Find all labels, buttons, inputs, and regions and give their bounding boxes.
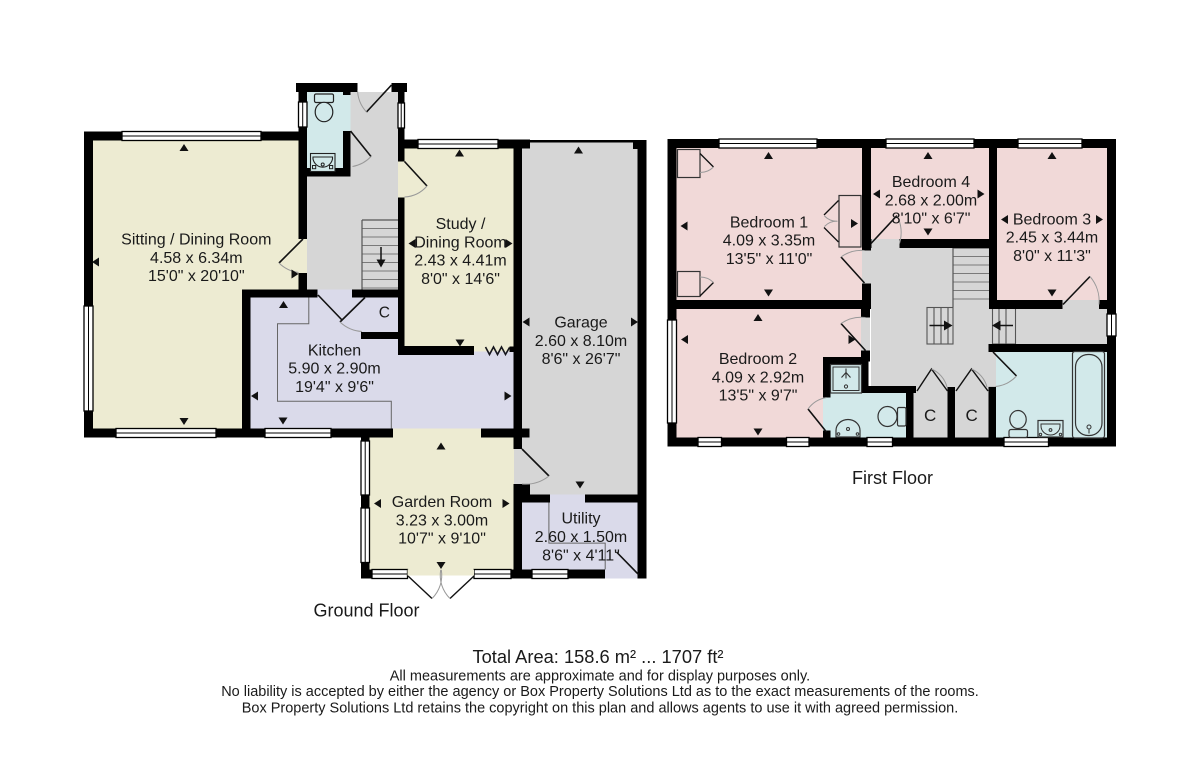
svg-text:8'6" x 26'7": 8'6" x 26'7" <box>542 351 621 368</box>
svg-text:C: C <box>965 406 977 425</box>
svg-text:5.90 x 2.90m: 5.90 x 2.90m <box>288 361 381 378</box>
svg-text:10'7" x 9'10": 10'7" x 9'10" <box>398 531 486 548</box>
svg-text:Bedroom 1: Bedroom 1 <box>730 214 808 231</box>
svg-text:19'4" x 9'6": 19'4" x 9'6" <box>295 379 374 396</box>
svg-text:2.43 x 4.41m: 2.43 x 4.41m <box>414 253 507 270</box>
svg-text:Total Area: 158.6 m² ... 1707: Total Area: 158.6 m² ... 1707 ft² <box>473 646 724 667</box>
svg-text:Box Property Solutions Ltd ret: Box Property Solutions Ltd retains the c… <box>242 701 959 717</box>
svg-text:13'5" x 11'0": 13'5" x 11'0" <box>726 251 813 268</box>
svg-text:Study /: Study / <box>436 216 486 233</box>
svg-text:13'5" x 9'7": 13'5" x 9'7" <box>719 388 798 405</box>
svg-text:Garage: Garage <box>554 315 607 332</box>
svg-text:Garden Room: Garden Room <box>392 494 493 511</box>
svg-text:Bedroom 2: Bedroom 2 <box>719 351 797 368</box>
svg-text:Bedroom 4: Bedroom 4 <box>892 174 970 191</box>
svg-text:8'0" x 11'3": 8'0" x 11'3" <box>1013 248 1091 265</box>
svg-text:C: C <box>379 305 390 322</box>
svg-text:Bedroom 3: Bedroom 3 <box>1013 211 1091 228</box>
svg-text:4.58 x 6.34m: 4.58 x 6.34m <box>150 250 243 267</box>
svg-text:4.09 x 3.35m: 4.09 x 3.35m <box>723 233 816 250</box>
svg-text:8'6" x 4'11": 8'6" x 4'11" <box>542 547 620 564</box>
svg-text:Sitting / Dining Room: Sitting / Dining Room <box>121 232 271 249</box>
svg-text:First Floor: First Floor <box>852 468 933 488</box>
svg-text:8'0" x 14'6": 8'0" x 14'6" <box>421 271 500 288</box>
svg-text:No liability is accepted by ei: No liability is accepted by either the a… <box>221 684 979 700</box>
svg-text:3.23 x 3.00m: 3.23 x 3.00m <box>396 512 489 529</box>
svg-text:8'10" x 6'7": 8'10" x 6'7" <box>892 211 971 228</box>
svg-text:2.45 x 3.44m: 2.45 x 3.44m <box>1006 230 1099 247</box>
svg-text:C: C <box>924 406 936 425</box>
svg-text:Kitchen: Kitchen <box>308 342 361 359</box>
svg-text:2.60 x 1.50m: 2.60 x 1.50m <box>535 529 628 546</box>
svg-text:Ground Floor: Ground Floor <box>313 601 419 621</box>
svg-text:4.09 x 2.92m: 4.09 x 2.92m <box>712 369 805 386</box>
svg-text:2.68 x 2.00m: 2.68 x 2.00m <box>885 192 978 209</box>
svg-text:All measurements are approxima: All measurements are approximate and for… <box>390 669 810 685</box>
svg-text:Utility: Utility <box>561 511 600 528</box>
svg-text:Dining Room: Dining Room <box>414 234 506 251</box>
svg-text:15'0" x 20'10": 15'0" x 20'10" <box>148 268 245 285</box>
svg-text:2.60 x 8.10m: 2.60 x 8.10m <box>535 333 628 350</box>
